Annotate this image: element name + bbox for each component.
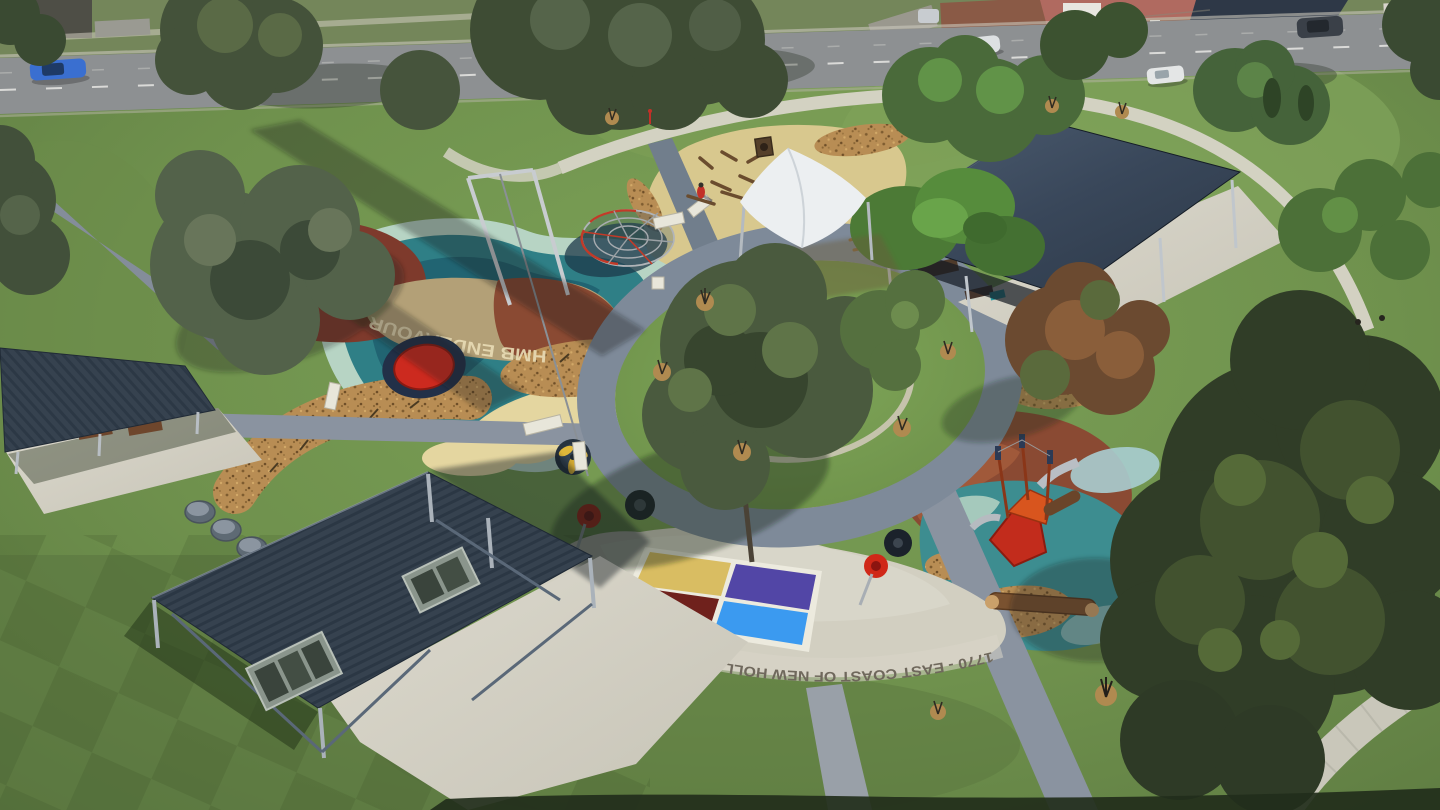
bird	[1355, 319, 1361, 325]
car-dark-suv	[1296, 15, 1343, 38]
ring-frame	[755, 137, 773, 157]
car-silver	[918, 9, 939, 23]
driveway	[95, 19, 151, 38]
bird	[1379, 315, 1385, 321]
aerial-photo: 1770 - EAST COAST OF NEW HOLLAND HMB END…	[0, 0, 1440, 810]
